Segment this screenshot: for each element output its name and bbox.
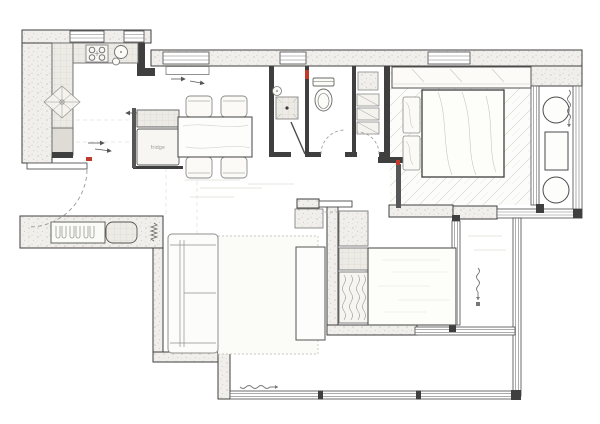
- double-bed-2: [368, 248, 456, 325]
- pillow-icon: [403, 136, 420, 170]
- bathroom: [273, 72, 380, 154]
- wall-living-left: [153, 248, 163, 358]
- window-top-1: [163, 52, 209, 64]
- window-post: [511, 390, 521, 400]
- balcony-stool-icon: [543, 97, 569, 123]
- red-marker: [396, 160, 400, 165]
- master-balcony-furniture: [543, 97, 569, 203]
- upper-cabinet: [137, 110, 179, 127]
- window-top-3: [428, 52, 470, 64]
- dining-chair: [221, 157, 247, 178]
- wall-main-top: [151, 50, 582, 66]
- sofa-icon: [168, 234, 218, 353]
- wall-master-door-stub: [378, 157, 405, 163]
- dining-chair: [221, 96, 247, 117]
- wall-balcony-step: [218, 352, 230, 399]
- radiator-body: [166, 67, 209, 75]
- entry-direction-arrow: [95, 149, 111, 151]
- wall-bath-left: [269, 66, 274, 157]
- red-marker: [305, 70, 309, 79]
- dining-chair: [186, 96, 212, 117]
- mattress: [422, 90, 504, 177]
- floor-plan-canvas: fridge: [0, 0, 600, 424]
- window-right-upper: [573, 86, 582, 218]
- shelves-icon: [357, 94, 379, 134]
- window-kitchen-1: [70, 31, 104, 42]
- wc-door-swing-arc: [321, 130, 345, 154]
- pillow-icon: [403, 97, 420, 133]
- window-post: [536, 204, 544, 213]
- wall-bath-bottom-seg1: [269, 152, 291, 157]
- window-post: [318, 391, 323, 400]
- window-master-balcony-left: [531, 86, 539, 205]
- wall-bath-bottom-seg4: [379, 152, 390, 157]
- fridge-base-ledge: [133, 166, 183, 169]
- wall-top-right-block: [531, 66, 582, 86]
- radiator: [166, 67, 209, 84]
- wardrobe2-top-cabinet: [339, 211, 368, 246]
- tv-cabinet: [296, 247, 325, 340]
- bedroom2-sliding-door-panel: [319, 201, 352, 207]
- shower-door-leaf: [291, 122, 305, 154]
- wardrobe2-hanging: [339, 272, 368, 323]
- balcony-table-icon: [545, 132, 568, 170]
- curtain-bottom-balcony: [240, 385, 278, 389]
- window-top-2: [280, 52, 306, 64]
- entry-rounded-cabinet: [106, 222, 137, 243]
- kitchen: [44, 43, 138, 158]
- curtain-bedroom2-balcony: [476, 268, 480, 306]
- fridge-side-panel: [132, 108, 136, 168]
- fridge-label: fridge: [151, 145, 165, 151]
- living-room: [168, 234, 325, 354]
- shoe-cabinet: [51, 222, 105, 243]
- window-post: [573, 209, 582, 218]
- wall-hall-stub: [297, 199, 319, 208]
- airflow-arrow: [190, 81, 204, 84]
- wall-bedroom2-bottom: [327, 325, 417, 335]
- window-post: [416, 391, 421, 400]
- kitchen-counter-end-cap: [52, 152, 73, 158]
- hall-cabinet: [295, 209, 323, 228]
- window-kitchen-2: [124, 31, 144, 42]
- wash-basin-icon: [273, 87, 282, 96]
- dining-table: [178, 117, 252, 157]
- dining-chair: [186, 157, 212, 178]
- window-post: [452, 215, 460, 221]
- fridge-unit: fridge: [132, 108, 179, 168]
- wardrobe2-mid: [339, 248, 368, 270]
- kitchen-tall-cabinet: [52, 128, 73, 155]
- cooktop-icon: [86, 45, 108, 62]
- floor-plan-svg: fridge: [0, 0, 600, 424]
- dining-set: [178, 96, 252, 178]
- balcony-stool-icon: [543, 177, 569, 203]
- window-bottom-balcony: [230, 391, 514, 399]
- storage-block: [358, 72, 378, 90]
- toilet-icon: [313, 78, 334, 111]
- laundry-door-swing-arc: [357, 132, 379, 154]
- wall-bath-divider1: [305, 66, 309, 157]
- laundry-storage: [357, 72, 379, 154]
- shower-tray-icon: [276, 97, 298, 119]
- wall-bath-bottom-seg2: [305, 152, 321, 157]
- window-post: [449, 325, 456, 332]
- window-right-lower: [513, 218, 521, 396]
- wall-bath-bottom-seg3: [345, 152, 357, 157]
- wall-left: [22, 30, 52, 163]
- wall-bath-right: [384, 66, 390, 158]
- red-marker: [86, 157, 92, 161]
- wardrobe-master: [392, 67, 531, 88]
- entry-door-leaf: [27, 163, 87, 169]
- master-sliding-door-panel: [396, 164, 401, 208]
- wall-kitchen-jog-h: [137, 68, 155, 76]
- wall-bedroom2-left: [327, 205, 338, 325]
- wall-bath-divider2: [352, 66, 356, 157]
- window-bedroom2-bottom: [415, 327, 515, 335]
